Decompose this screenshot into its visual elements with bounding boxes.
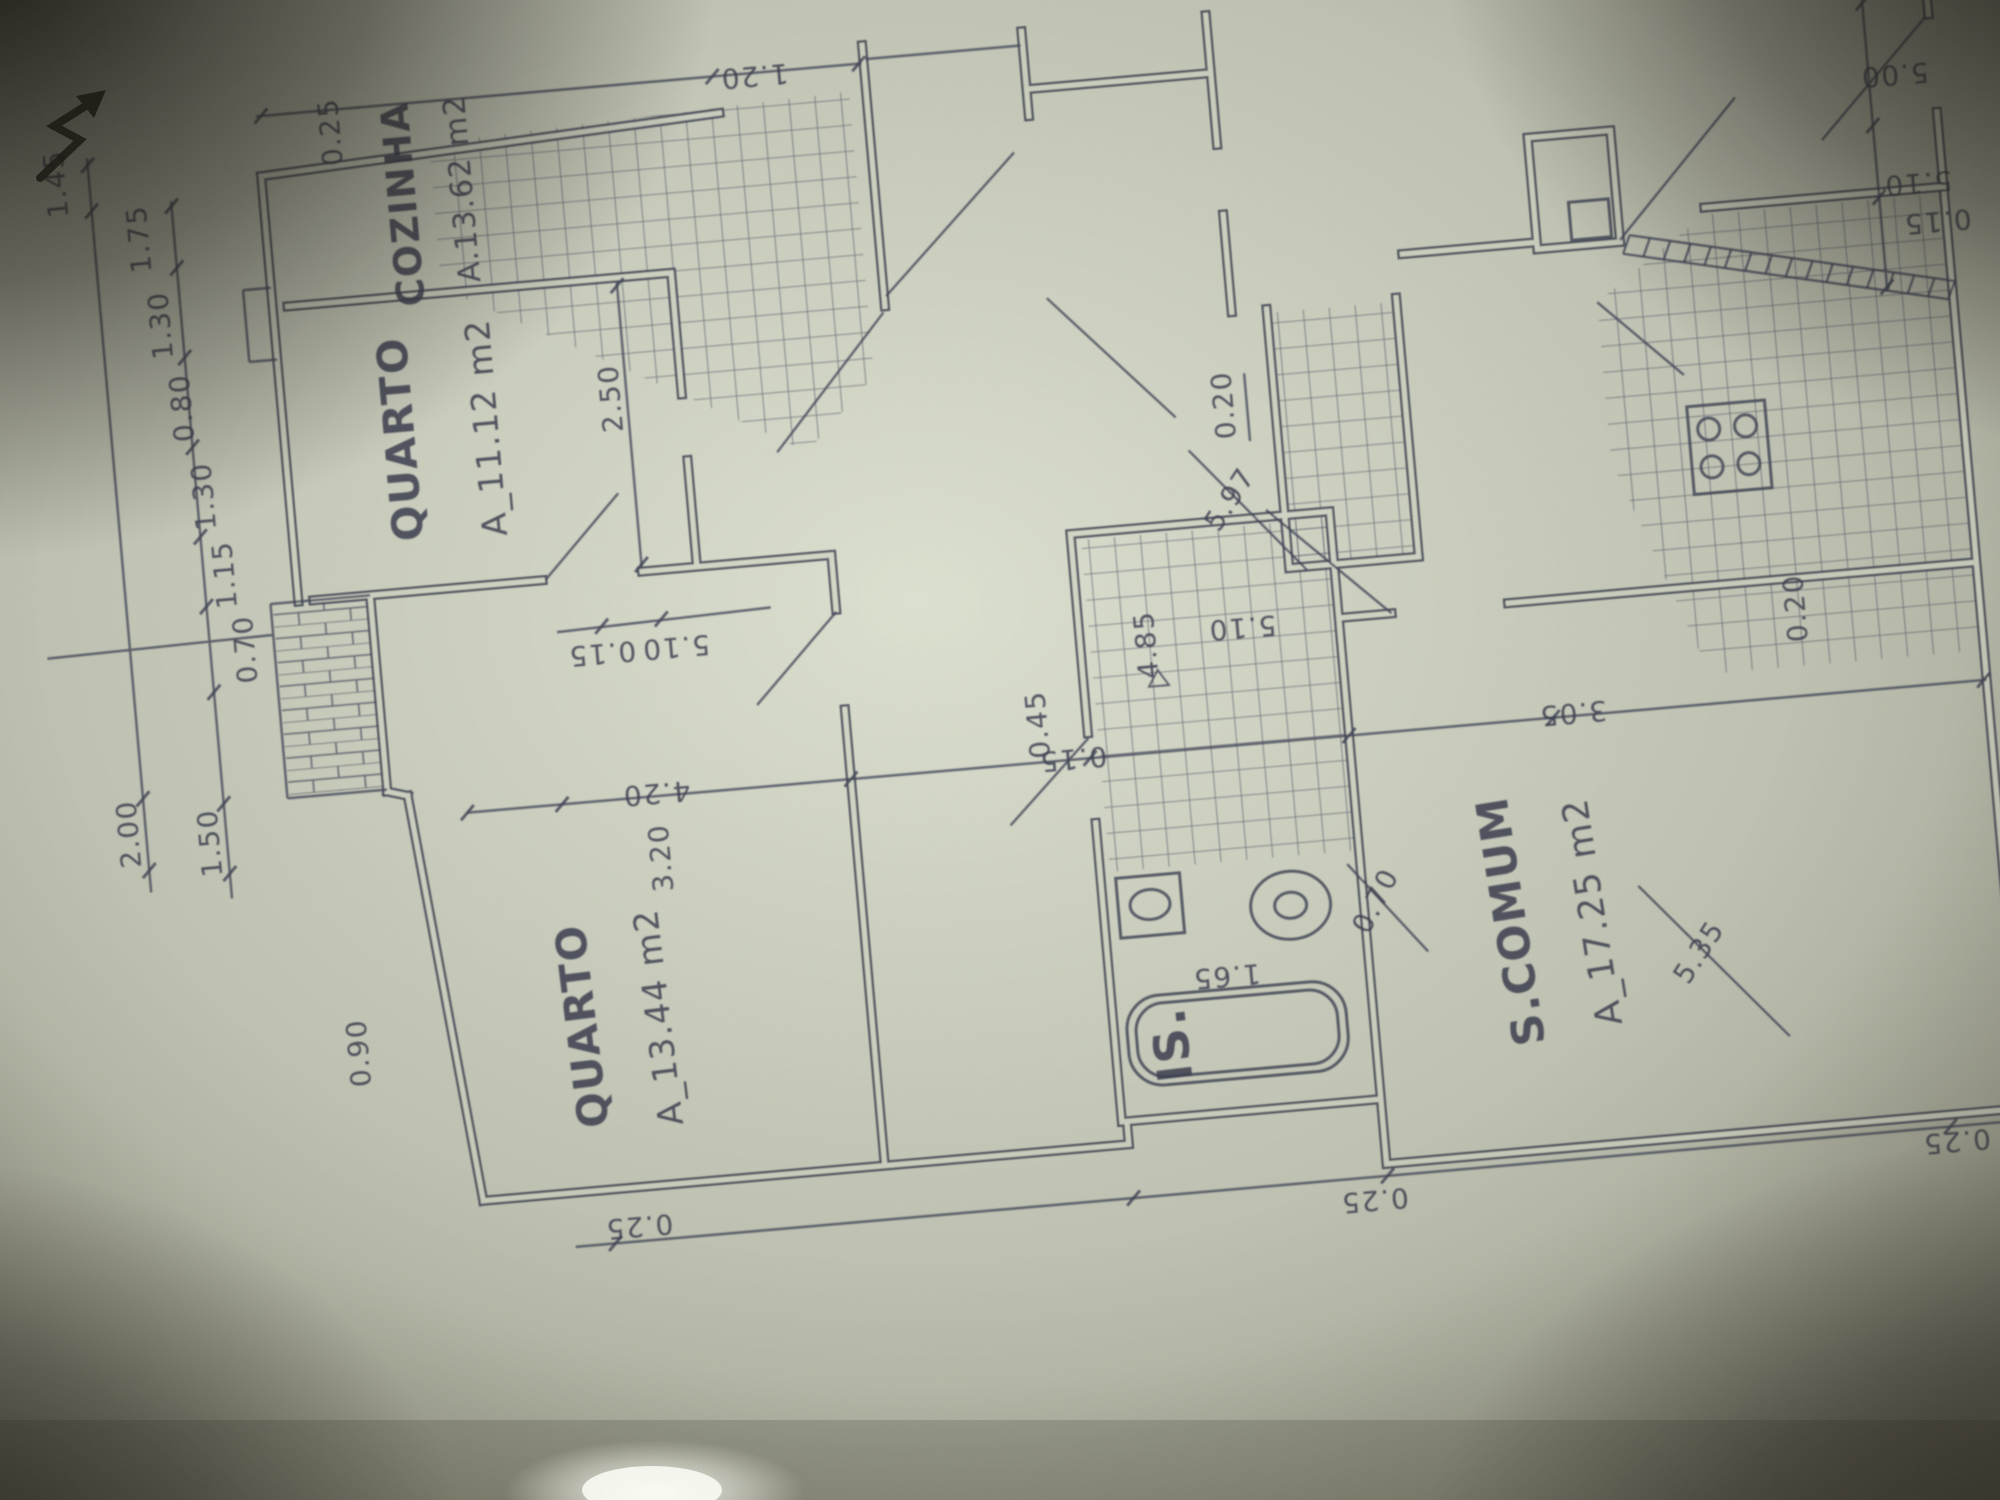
film-grain (0, 0, 2000, 1500)
blueprint-photo: COZINHAA.13.62 m2QUARTOA_11.12 m2QUARTOA… (0, 0, 2000, 1500)
floor-plan-svg: COZINHAA.13.62 m2QUARTOA_11.12 m2QUARTOA… (0, 0, 2000, 1500)
